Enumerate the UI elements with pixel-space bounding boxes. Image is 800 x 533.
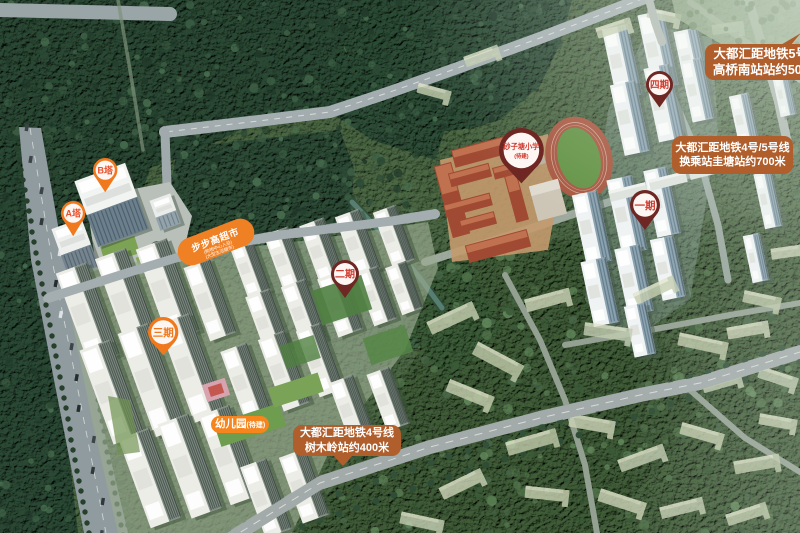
svg-text:砂子塘小学: 砂子塘小学 [502, 141, 539, 150]
svg-text:三期: 三期 [152, 326, 173, 339]
svg-text:A塔: A塔 [65, 207, 81, 218]
svg-text:二期: 二期 [335, 268, 355, 281]
svg-text:B塔: B塔 [97, 164, 113, 175]
svg-text:四期: 四期 [649, 78, 668, 90]
svg-text:(待建): (待建) [514, 152, 529, 160]
svg-text:一期: 一期 [635, 199, 656, 212]
